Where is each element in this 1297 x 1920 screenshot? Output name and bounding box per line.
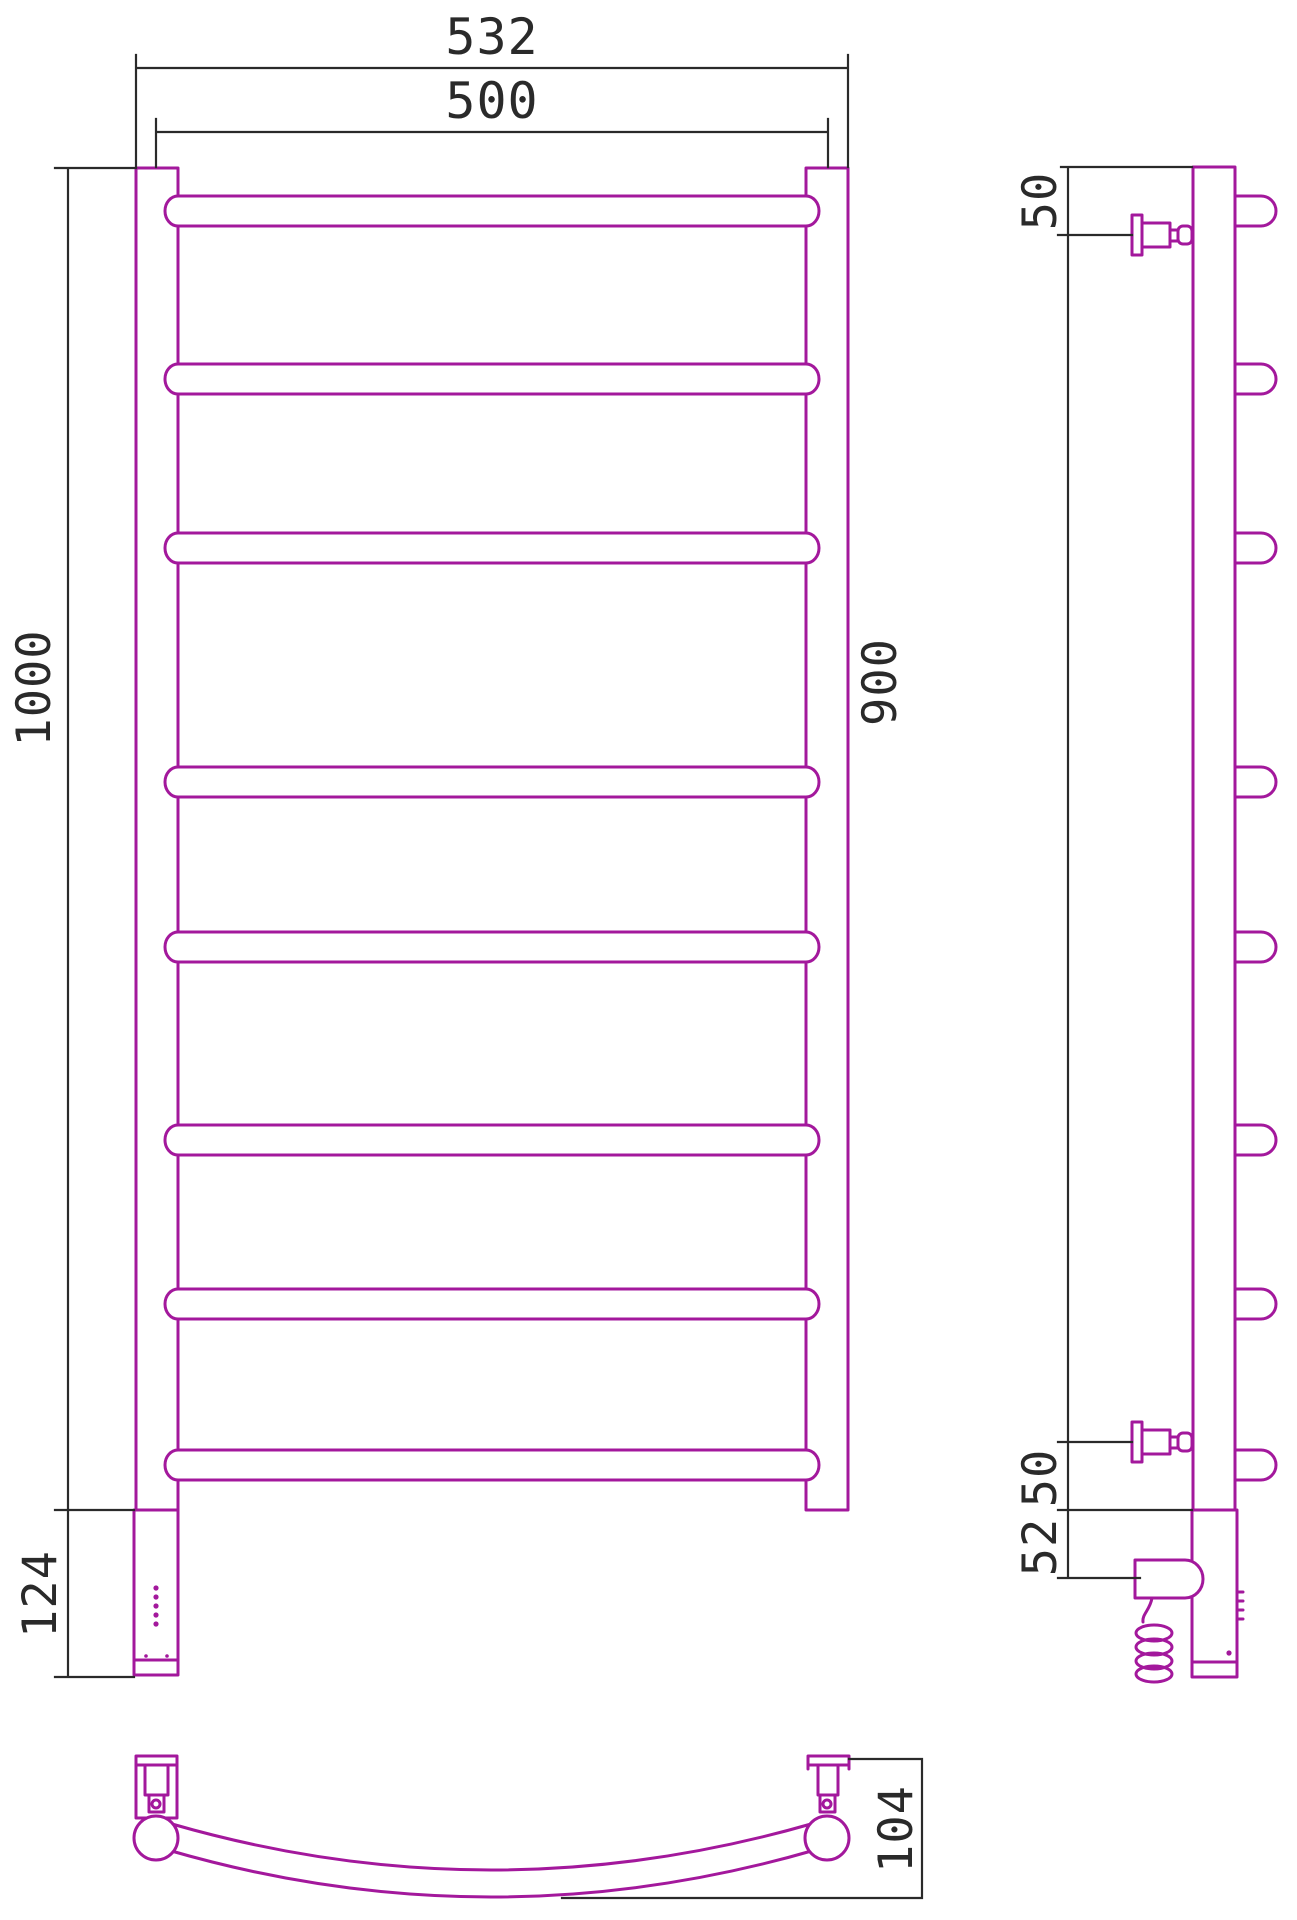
- bar-rungs: [165, 196, 819, 1480]
- curved-bar-bottom-edge: [168, 1850, 815, 1897]
- bar-stub: [1235, 1289, 1276, 1319]
- wall-bracket-right-icon: [808, 1756, 849, 1812]
- side-bar-stubs: [1235, 196, 1276, 1480]
- dim-label-50-top: 50: [1013, 172, 1068, 231]
- bar-rung: [165, 932, 819, 962]
- bar-rung: [165, 1289, 819, 1319]
- rail-tube-section-right: [805, 1816, 849, 1860]
- bar-stub: [1235, 1450, 1276, 1480]
- dim-label-1000: 1000: [7, 629, 62, 746]
- side-rail-tube: [1193, 167, 1235, 1510]
- wall-bracket-left-icon: [136, 1756, 177, 1818]
- bar-stub: [1235, 533, 1276, 563]
- top-view: [134, 1756, 849, 1897]
- dim-label-124: 124: [13, 1550, 68, 1638]
- heater-housing-side-dot: [1226, 1650, 1231, 1655]
- dim-label-500: 500: [445, 72, 538, 130]
- bar-stub: [1235, 364, 1276, 394]
- bar-rung: [165, 1450, 819, 1480]
- valve-fitting-top-icon: [1132, 215, 1192, 255]
- valve-fitting-bottom-icon: [1132, 1422, 1192, 1462]
- bar-rung: [165, 533, 819, 563]
- curved-bar-top-edge: [172, 1824, 811, 1870]
- dim-label-104: 104: [869, 1785, 924, 1873]
- cable-gland: [1135, 1560, 1203, 1598]
- dim-line-side: [1058, 167, 1192, 1578]
- drawing-sheet: 532 500 1000 124 50 900 50 52 104: [0, 0, 1297, 1920]
- dimension-lines: [55, 55, 1192, 1898]
- front-view: [134, 168, 848, 1675]
- dim-label-900: 900: [853, 638, 908, 726]
- dim-line-104: [562, 1759, 922, 1898]
- bar-rung: [165, 1125, 819, 1155]
- bar-stub: [1235, 767, 1276, 797]
- cord-coil-icon: [1136, 1625, 1172, 1682]
- bar-rung: [165, 364, 819, 394]
- heater-housing-front: [134, 1510, 178, 1675]
- rail-tube-section-left: [134, 1816, 178, 1860]
- dim-label-50-bottom: 50: [1013, 1449, 1068, 1508]
- bar-stub: [1235, 196, 1276, 226]
- bar-rung: [165, 196, 819, 226]
- power-cord: [1143, 1598, 1152, 1622]
- heater-housing-side: [1192, 1510, 1243, 1677]
- towel-rail-technical-drawing: 532 500 1000 124 50 900 50 52 104: [0, 0, 1297, 1920]
- dim-line-1000: [55, 168, 136, 1510]
- dim-label-52: 52: [1013, 1518, 1068, 1577]
- side-view: [1132, 167, 1276, 1682]
- bar-stub: [1235, 1125, 1276, 1155]
- dim-label-532: 532: [445, 8, 538, 66]
- bar-stub: [1235, 932, 1276, 962]
- bar-rung: [165, 767, 819, 797]
